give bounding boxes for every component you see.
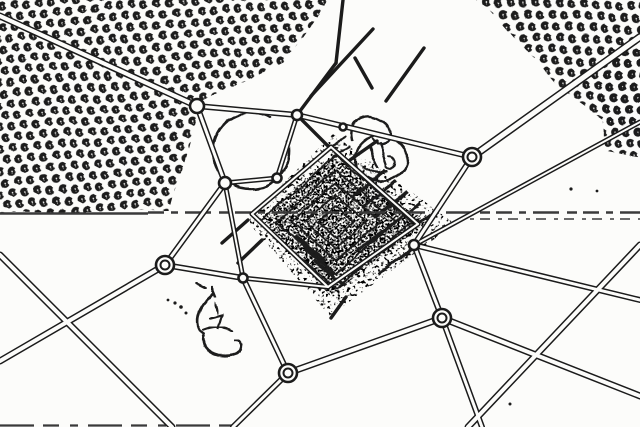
line-art-scene <box>0 0 640 427</box>
stray-dot <box>173 301 176 304</box>
stray-dot <box>596 190 599 193</box>
stray-dot <box>185 312 188 315</box>
junction-node <box>409 240 419 250</box>
edge-detected-aerial-photo <box>0 0 640 427</box>
junction-node <box>239 274 248 283</box>
junction-node <box>273 174 282 183</box>
junction-node <box>433 309 451 327</box>
junction-node <box>219 177 231 189</box>
junction-node <box>292 110 302 120</box>
stray-dot <box>179 305 183 309</box>
junction-node <box>190 99 204 113</box>
junction-node <box>340 124 347 131</box>
stray-dot <box>569 187 572 190</box>
junction-node <box>156 256 174 274</box>
stray-dot <box>167 299 170 302</box>
junction-node <box>279 364 297 382</box>
junction-node <box>463 148 481 166</box>
stray-dot <box>509 403 512 406</box>
